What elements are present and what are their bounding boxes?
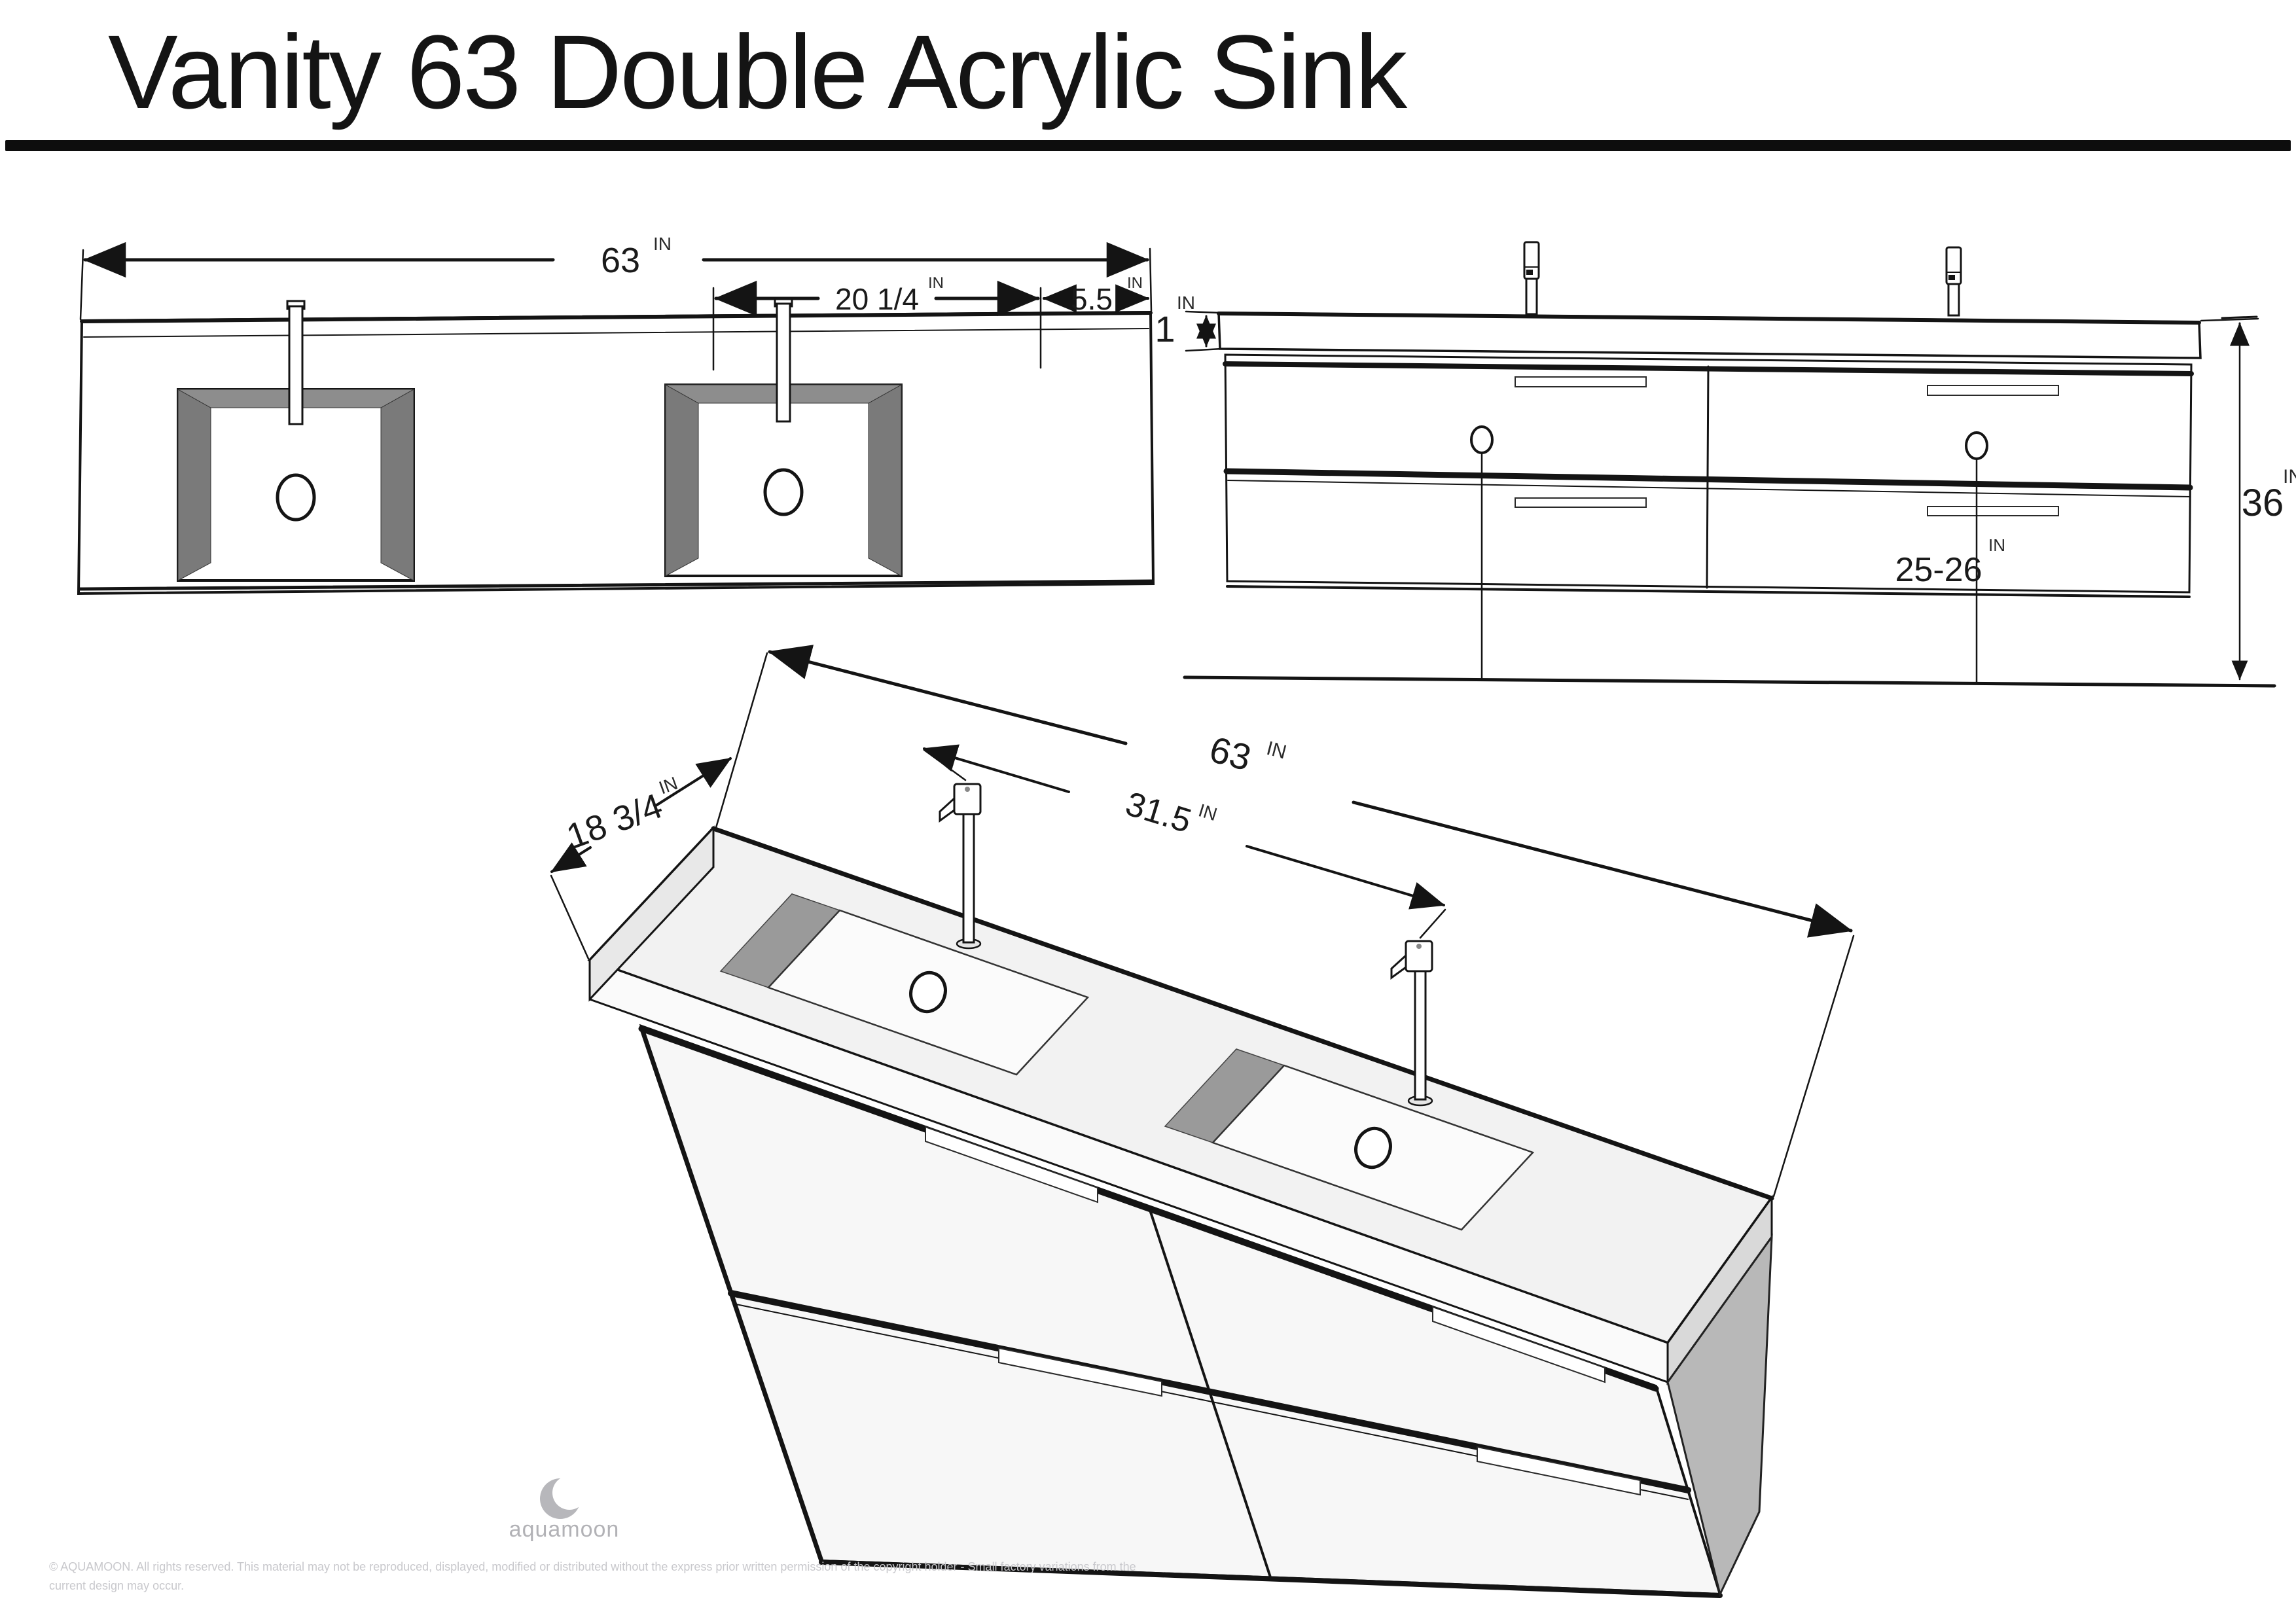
drawer-handle	[1515, 498, 1646, 507]
drain-icon	[1966, 433, 1987, 459]
svg-text:31.5: 31.5	[1121, 785, 1196, 840]
perspective-view-diagram: 63 IN 18 3/4 IN 31.5 IN	[511, 576, 2062, 1623]
drawer-handle	[1515, 377, 1646, 387]
svg-text:IN: IN	[928, 274, 944, 292]
svg-text:IN: IN	[1196, 800, 1219, 825]
copyright-notice: © AQUAMOON. All rights reserved. This ma…	[49, 1558, 1165, 1596]
svg-text:1: 1	[1155, 308, 1175, 349]
dimension-height: 36 IN	[2201, 317, 2296, 679]
svg-text:IN: IN	[2283, 466, 2296, 488]
svg-text:5.5: 5.5	[1071, 282, 1113, 316]
faucet-icon	[1524, 242, 1539, 314]
drawer-handle	[1928, 385, 2058, 395]
cabinet-front	[1225, 355, 2191, 597]
svg-text:IN: IN	[656, 773, 681, 798]
page-title: Vanity 63 Double Acrylic Sink	[108, 12, 1405, 132]
spec-sheet: Vanity 63 Double Acrylic Sink	[0, 0, 2296, 1623]
faucet-icon	[1946, 247, 1961, 315]
svg-text:63: 63	[601, 241, 640, 280]
faucet-icon	[775, 298, 792, 421]
dimension-counter-thickness: 1 IN	[1155, 293, 1222, 351]
brand-logo-text: aquamoon	[505, 1517, 623, 1543]
svg-text:IN: IN	[653, 234, 672, 254]
drain-icon	[1471, 427, 1492, 453]
dimension-faucet-spacing: 31.5 IN	[924, 749, 1445, 938]
svg-text:IN: IN	[1265, 738, 1289, 763]
faucet-icon	[287, 301, 304, 424]
drain-icon	[765, 470, 802, 514]
svg-text:IN: IN	[1177, 293, 1195, 313]
drain-icon	[278, 475, 314, 520]
svg-text:36: 36	[2242, 482, 2284, 524]
title-divider	[5, 140, 2291, 151]
svg-text:18 3/4: 18 3/4	[562, 786, 668, 857]
top-view-diagram: 63 IN 20 1/4 IN 5.5 IN	[65, 223, 1178, 628]
drawer-handle	[1928, 507, 2058, 516]
dimension-overall-width: 63 IN	[81, 234, 1151, 319]
svg-text:63: 63	[1206, 728, 1255, 779]
svg-text:20 1/4: 20 1/4	[835, 282, 919, 316]
svg-text:IN: IN	[1988, 535, 2005, 555]
